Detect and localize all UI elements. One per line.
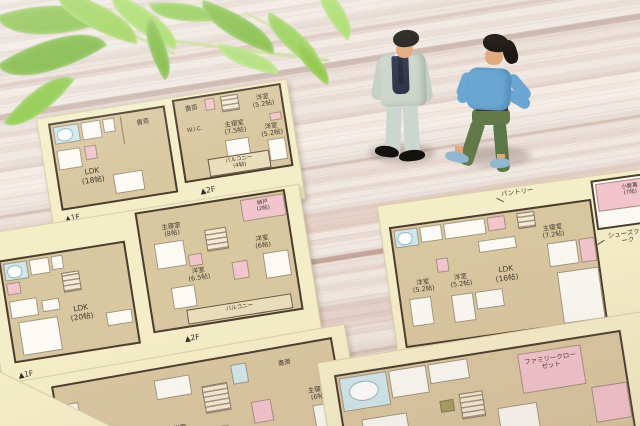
room-label-storeroom: 納戸(2帖)	[255, 199, 270, 214]
woman-figurine	[445, 28, 540, 178]
kitchen-island	[478, 236, 517, 253]
closet-block	[231, 260, 250, 280]
entrance	[557, 267, 606, 324]
closet-block	[84, 145, 98, 161]
toilet-room	[50, 255, 64, 271]
hallway	[428, 358, 471, 384]
room-label-wic: W.I.C.	[187, 126, 203, 135]
stairs	[61, 270, 82, 293]
closet-block	[251, 399, 275, 424]
toilet-room	[102, 117, 116, 133]
room-label-study: 書斎	[277, 359, 291, 369]
sofa	[106, 308, 134, 326]
closet-block	[204, 98, 216, 111]
room-label-west1: 洋室(5.2帖)	[251, 92, 275, 110]
room-label-ldk: LDK(20帖)	[69, 303, 94, 324]
bed	[154, 239, 188, 269]
stairs	[220, 94, 240, 113]
room-label-master: 主寝室(7.2帖)	[541, 223, 565, 241]
man-tie	[398, 58, 404, 84]
room-label-ldk: LDK(18帖)	[80, 166, 105, 187]
room-label-west1: 洋室(6帖)	[254, 234, 272, 251]
washroom	[388, 365, 430, 399]
floor-marker-2f: ▲2F	[184, 332, 200, 343]
closet-block	[591, 382, 632, 423]
dining-table	[475, 288, 505, 310]
bed	[547, 239, 580, 267]
room-label-study: 書斎	[136, 118, 150, 127]
room-label-west1: 洋室(5.2帖)	[412, 278, 436, 296]
man-hair	[392, 29, 420, 49]
room-label-west2: 洋室(6.5帖)	[187, 266, 211, 284]
bed	[262, 249, 292, 279]
floorplan-b-1f: LDK(20帖)	[0, 241, 141, 364]
bed	[451, 292, 477, 323]
closet-block	[6, 282, 22, 296]
bed	[267, 137, 288, 162]
room-label-ldk: LDK(16帖)	[494, 264, 519, 284]
wall-line	[120, 116, 125, 144]
room-label-attic: 小屋裏(7帖)	[621, 182, 639, 197]
floorplan-c-attic: 小屋裏(7帖)	[590, 170, 640, 230]
closet-block	[436, 257, 450, 273]
shoes-closet	[578, 237, 597, 263]
washroom	[419, 224, 443, 243]
room-label-west2: 洋室(5.2帖)	[449, 272, 473, 290]
stairs	[201, 382, 231, 414]
floorplan-a-1f: 書斎 LDK(18帖)	[48, 105, 178, 210]
closet-block	[439, 399, 455, 413]
washroom	[29, 257, 51, 276]
floor-marker-2f: ▲2F	[200, 185, 216, 196]
pantry	[486, 215, 506, 231]
closet-block	[269, 111, 282, 121]
kitchen-counter	[9, 297, 39, 319]
stairs	[516, 211, 536, 229]
callout-shoes-closet: シューズクローク	[606, 227, 640, 248]
room-label-master: 主寝室(8帖)	[161, 222, 183, 240]
room-label-master: 主寝室(7.5帖)	[223, 119, 247, 137]
washroom	[80, 120, 103, 141]
dining-table	[113, 170, 146, 194]
room-label-study: 書斎	[184, 104, 198, 113]
stairs	[459, 390, 487, 419]
floorplan-a-2f: 書斎 W.I.C. 主寝室(7.5帖) 洋室(5.2帖) 洋室(5.2帖) バル…	[172, 83, 294, 183]
entrance	[497, 402, 542, 426]
stairs	[204, 227, 229, 252]
callout-tick	[597, 240, 604, 245]
hallway	[443, 218, 487, 240]
floorplan-b-2f: 納戸(2帖) 主寝室(8帖) 洋室(6帖) 洋室(6.5帖) バルコニー	[134, 189, 303, 333]
bed	[409, 296, 435, 327]
photo-scene: 書斎 LDK(18帖) ▲1F 書斎 W.I.C. 主寝室(7.5帖)	[0, 0, 640, 426]
kitchen-counter	[56, 147, 83, 171]
dining-table	[18, 316, 63, 356]
toilet-room	[230, 362, 249, 384]
closet-block	[188, 253, 204, 267]
hallway	[154, 374, 193, 400]
kitchen-counter	[361, 412, 409, 426]
woman-blouse	[466, 67, 512, 111]
bed	[171, 284, 198, 309]
callout-pantry: パントリー	[501, 187, 535, 199]
man-figurine	[365, 25, 439, 175]
kitchen-island	[41, 298, 61, 313]
